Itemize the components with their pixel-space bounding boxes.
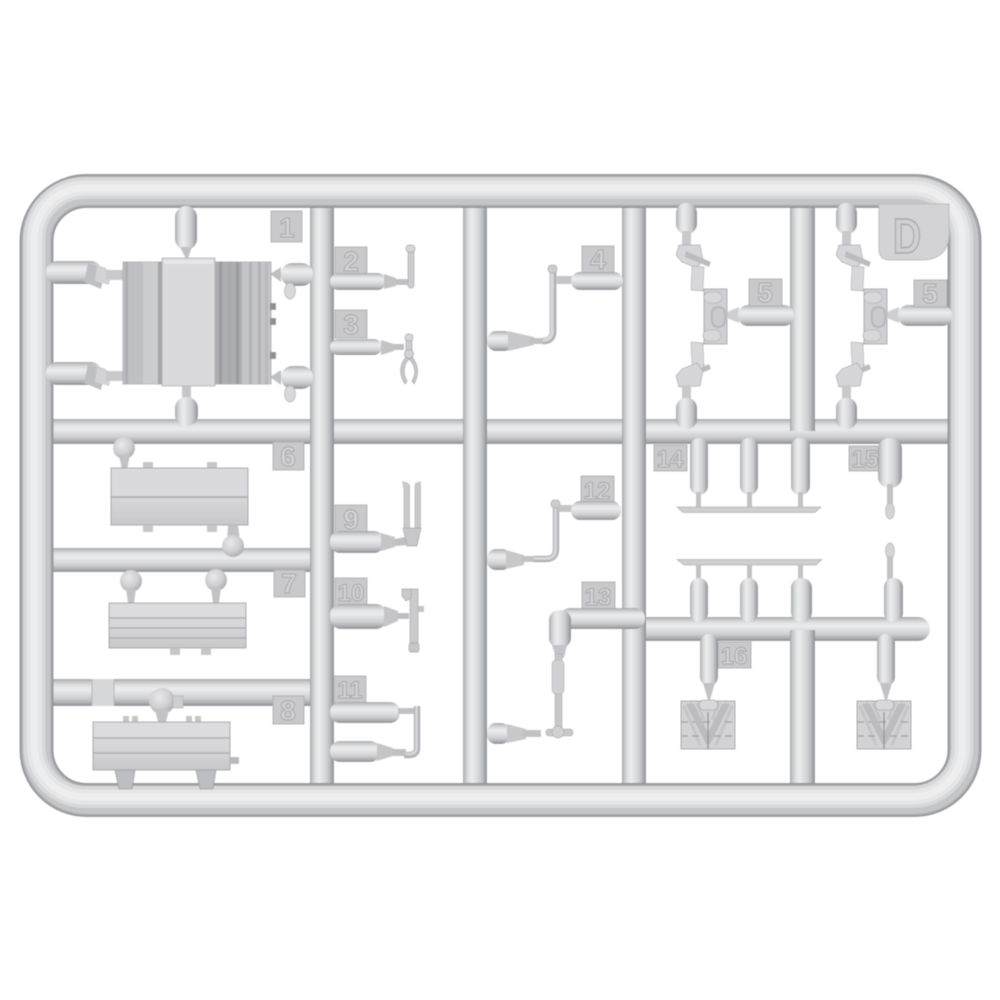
svg-text:D: D bbox=[893, 210, 921, 264]
svg-text:10: 10 bbox=[338, 580, 365, 607]
svg-text:2: 2 bbox=[343, 246, 359, 277]
svg-text:5: 5 bbox=[922, 278, 938, 309]
svg-text:9: 9 bbox=[343, 504, 359, 535]
svg-text:7: 7 bbox=[281, 568, 297, 599]
svg-text:16: 16 bbox=[721, 643, 748, 670]
svg-text:15: 15 bbox=[852, 446, 879, 473]
svg-text:13: 13 bbox=[585, 584, 612, 611]
svg-text:11: 11 bbox=[337, 677, 362, 704]
svg-text:4: 4 bbox=[590, 244, 606, 275]
svg-text:8: 8 bbox=[280, 695, 296, 726]
svg-text:12: 12 bbox=[584, 478, 611, 505]
svg-text:1: 1 bbox=[279, 212, 295, 243]
svg-text:5: 5 bbox=[757, 277, 773, 308]
svg-text:6: 6 bbox=[280, 441, 296, 472]
svg-text:3: 3 bbox=[343, 309, 359, 340]
svg-text:14: 14 bbox=[657, 446, 684, 473]
